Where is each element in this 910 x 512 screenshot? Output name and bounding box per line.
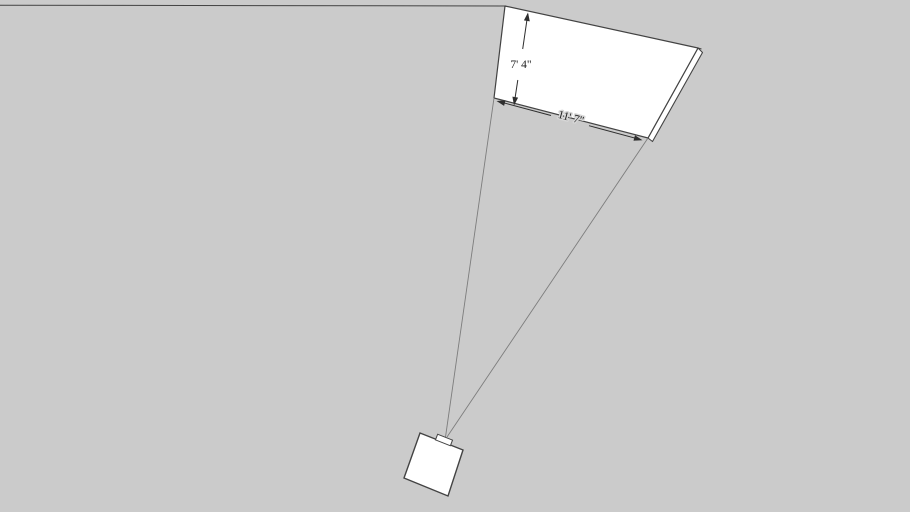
viewport-background[interactable] [0, 0, 910, 512]
3d-viewport[interactable]: 7' 4" 11' 7" [0, 0, 910, 512]
dimension-label-height[interactable]: 7' 4" [510, 59, 531, 71]
